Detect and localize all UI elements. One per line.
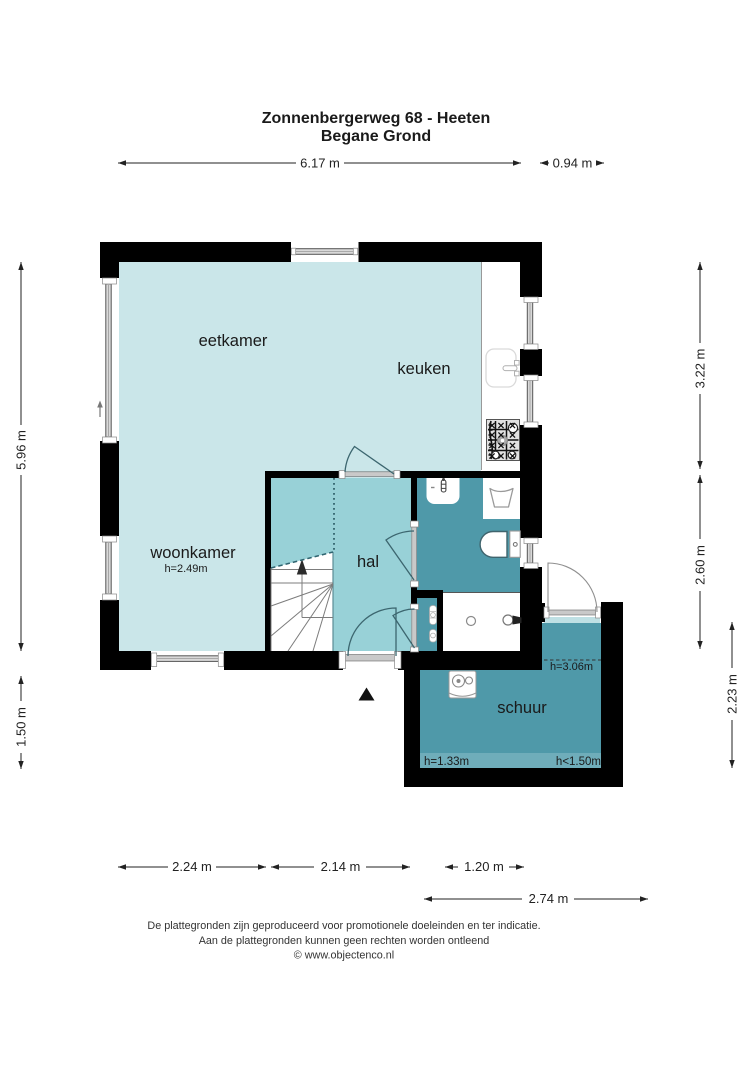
svg-text:2.74 m: 2.74 m <box>529 891 569 906</box>
svg-text:Aan de plattegronden kunnen ge: Aan de plattegronden kunnen geen rechten… <box>199 935 490 947</box>
svg-text:Begane Grond: Begane Grond <box>321 128 431 145</box>
svg-text:3.22 m: 3.22 m <box>693 349 708 389</box>
svg-text:2.14 m: 2.14 m <box>321 859 361 874</box>
svg-text:0.94 m: 0.94 m <box>553 156 593 171</box>
svg-text:2.24 m: 2.24 m <box>172 859 212 874</box>
svg-text:2.60 m: 2.60 m <box>693 545 708 585</box>
svg-text:hal: hal <box>357 553 379 571</box>
svg-text:© www.objectenco.nl: © www.objectenco.nl <box>294 950 394 962</box>
svg-text:woonkamer: woonkamer <box>149 544 236 562</box>
svg-text:1.20 m: 1.20 m <box>464 859 504 874</box>
svg-text:eetkamer: eetkamer <box>199 332 268 350</box>
svg-text:h=2.49m: h=2.49m <box>164 563 207 575</box>
svg-text:6.17 m: 6.17 m <box>300 156 340 171</box>
svg-text:h=3.06m: h=3.06m <box>550 661 593 673</box>
svg-text:h<1.50m: h<1.50m <box>556 756 601 768</box>
svg-text:keuken: keuken <box>397 360 450 378</box>
svg-text:1.50 m: 1.50 m <box>14 707 29 747</box>
svg-text:Zonnenbergerweg 68 - Heeten: Zonnenbergerweg 68 - Heeten <box>262 110 491 127</box>
svg-text:2.23 m: 2.23 m <box>725 674 740 714</box>
svg-text:h=1.33m: h=1.33m <box>424 756 469 768</box>
svg-text:schuur: schuur <box>497 699 547 717</box>
svg-text:5.96 m: 5.96 m <box>14 430 29 470</box>
svg-text:De plattegronden zijn geproduc: De plattegronden zijn geproduceerd voor … <box>147 920 540 932</box>
